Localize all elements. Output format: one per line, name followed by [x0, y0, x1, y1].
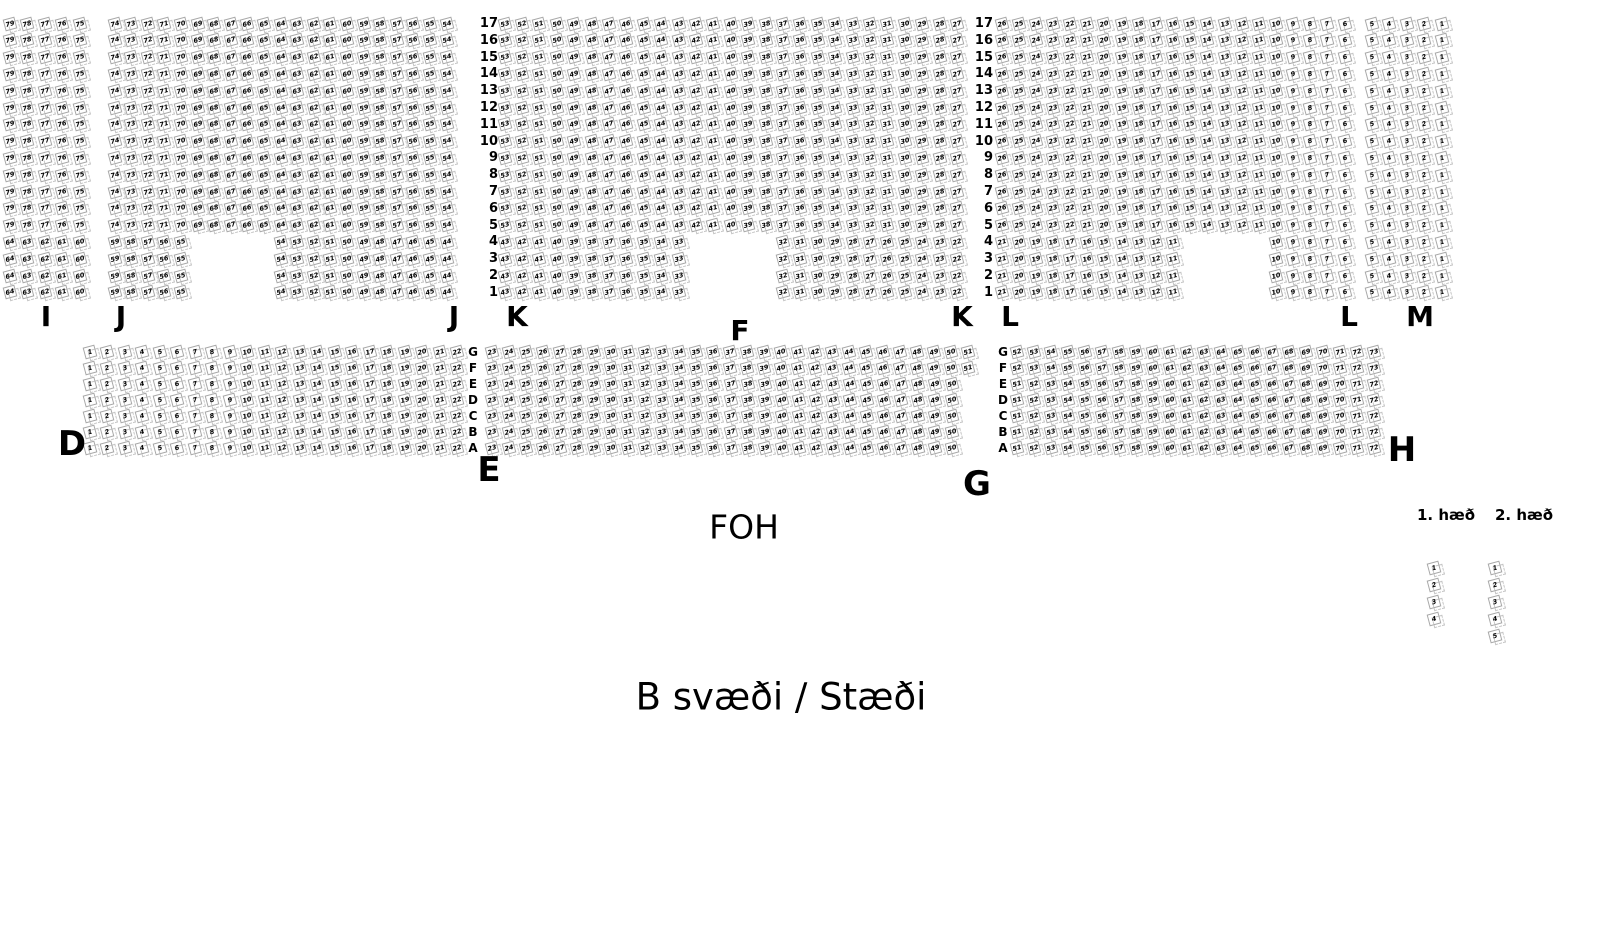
seat[interactable]: 54	[439, 151, 454, 166]
seat[interactable]: 20	[415, 360, 430, 375]
seat[interactable]: 54	[439, 83, 454, 98]
seat[interactable]: 33	[845, 83, 860, 98]
seat[interactable]: 45	[636, 167, 651, 182]
seat[interactable]: 46	[619, 184, 634, 199]
seat[interactable]: 47	[894, 440, 909, 455]
seat[interactable]: 33	[845, 50, 860, 65]
seat[interactable]: 44	[654, 33, 669, 48]
seat[interactable]: 46	[619, 117, 634, 132]
seat[interactable]: 73	[124, 67, 139, 82]
seat[interactable]: 65	[1247, 424, 1262, 439]
seat[interactable]: 46	[877, 424, 892, 439]
seat[interactable]: 56	[1077, 344, 1092, 359]
seat[interactable]: 53	[497, 50, 512, 65]
seat[interactable]: 78	[20, 151, 35, 166]
seat[interactable]: 7	[1320, 218, 1335, 233]
seat[interactable]: 53	[497, 201, 512, 216]
seat[interactable]: 63	[1196, 344, 1211, 359]
seat[interactable]: 5	[152, 344, 167, 359]
seat[interactable]: 9	[1286, 184, 1301, 199]
seat[interactable]: 5	[1364, 151, 1379, 166]
seat[interactable]: 52	[306, 235, 321, 250]
seat[interactable]: 12	[1234, 33, 1249, 48]
seat[interactable]: 24	[1028, 100, 1043, 115]
seat[interactable]: 3	[117, 360, 132, 375]
seat[interactable]: 59	[356, 33, 371, 48]
seat[interactable]: 64	[1230, 424, 1245, 439]
seat[interactable]: 56	[1094, 440, 1109, 455]
seat[interactable]: 9	[1286, 33, 1301, 48]
seat[interactable]: 52	[1026, 440, 1041, 455]
seat[interactable]: 9	[222, 424, 237, 439]
seat[interactable]: 6	[170, 440, 185, 455]
seat[interactable]: 65	[257, 134, 272, 149]
seat[interactable]: 71	[157, 184, 172, 199]
seat[interactable]: 31	[880, 83, 895, 98]
seat[interactable]: 72	[140, 218, 155, 233]
seat[interactable]: 63	[1196, 360, 1211, 375]
seat[interactable]: 31	[880, 50, 895, 65]
seat[interactable]: 61	[323, 100, 338, 115]
seat[interactable]: 5	[152, 440, 167, 455]
seat[interactable]: 28	[845, 285, 860, 300]
seat[interactable]: 79	[2, 184, 17, 199]
seat[interactable]: 74	[107, 50, 122, 65]
seat[interactable]: 35	[688, 360, 703, 375]
seat[interactable]: 15	[1183, 50, 1198, 65]
seat[interactable]: 47	[894, 376, 909, 391]
seat[interactable]: 18	[1046, 251, 1061, 266]
seat[interactable]: 56	[406, 50, 421, 65]
seat[interactable]: 5	[1364, 201, 1379, 216]
seat[interactable]: 51	[323, 251, 338, 266]
seat[interactable]: 29	[915, 50, 930, 65]
seat[interactable]: 46	[406, 235, 421, 250]
seat[interactable]: 45	[636, 50, 651, 65]
seat[interactable]: 11	[1251, 50, 1266, 65]
seat[interactable]: 47	[602, 151, 617, 166]
seat[interactable]: 27	[552, 360, 567, 375]
seat[interactable]: 37	[776, 100, 791, 115]
seat[interactable]: 38	[758, 167, 773, 182]
seat[interactable]: 69	[190, 83, 205, 98]
seat[interactable]: 70	[174, 50, 189, 65]
seat[interactable]: 34	[828, 167, 843, 182]
seat[interactable]: 24	[501, 392, 516, 407]
seat[interactable]: 78	[20, 67, 35, 82]
seat[interactable]: 61	[323, 67, 338, 82]
seat[interactable]: 59	[356, 184, 371, 199]
seat[interactable]: 36	[619, 235, 634, 250]
seat[interactable]: 74	[107, 151, 122, 166]
seat[interactable]: 52	[1009, 344, 1024, 359]
seat[interactable]: 14	[1200, 134, 1215, 149]
seat[interactable]: 2	[1487, 577, 1502, 592]
seat[interactable]: 4	[135, 424, 150, 439]
seat[interactable]: 18	[1131, 218, 1146, 233]
seat[interactable]: 57	[1111, 424, 1126, 439]
seat[interactable]: 73	[1366, 344, 1381, 359]
seat[interactable]: 18	[1131, 167, 1146, 182]
seat[interactable]: 2	[1417, 167, 1432, 182]
seat[interactable]: 71	[157, 151, 172, 166]
seat[interactable]: 13	[292, 440, 307, 455]
seat[interactable]: 66	[240, 33, 255, 48]
seat[interactable]: 67	[1281, 392, 1296, 407]
seat[interactable]: 20	[1097, 16, 1112, 31]
seat[interactable]: 59	[356, 117, 371, 132]
seat[interactable]: 3	[117, 344, 132, 359]
seat[interactable]: 14	[1200, 100, 1215, 115]
seat[interactable]: 60	[340, 67, 355, 82]
seat[interactable]: 50	[945, 424, 960, 439]
seat[interactable]: 45	[636, 151, 651, 166]
seat[interactable]: 55	[423, 117, 438, 132]
seat[interactable]: 9	[1286, 151, 1301, 166]
seat[interactable]: 66	[240, 100, 255, 115]
seat[interactable]: 31	[880, 218, 895, 233]
seat[interactable]: 58	[124, 285, 139, 300]
seat[interactable]: 44	[654, 167, 669, 182]
seat[interactable]: 62	[306, 16, 321, 31]
seat[interactable]: 26	[994, 167, 1009, 182]
seat[interactable]: 67	[1281, 376, 1296, 391]
seat[interactable]: 50	[549, 201, 564, 216]
seat[interactable]: 47	[602, 83, 617, 98]
seat[interactable]: 9	[1286, 285, 1301, 300]
seat[interactable]: 25	[1011, 167, 1026, 182]
seat[interactable]: 32	[863, 184, 878, 199]
seat[interactable]: 25	[518, 424, 533, 439]
seat[interactable]: 7	[1320, 50, 1335, 65]
seat[interactable]: 54	[1060, 392, 1075, 407]
seat[interactable]: 39	[756, 360, 771, 375]
seat[interactable]: 17	[1148, 33, 1163, 48]
seat[interactable]: 6	[1337, 67, 1352, 82]
seat[interactable]: 19	[1114, 50, 1129, 65]
seat[interactable]: 40	[549, 251, 564, 266]
seat[interactable]: 16	[1080, 251, 1095, 266]
seat[interactable]: 71	[1349, 392, 1364, 407]
seat[interactable]: 34	[654, 235, 669, 250]
seat[interactable]: 36	[793, 100, 808, 115]
seat[interactable]: 57	[140, 268, 155, 283]
seat[interactable]: 10	[240, 440, 255, 455]
seat[interactable]: 6	[1337, 33, 1352, 48]
seat[interactable]: 21	[1080, 16, 1095, 31]
seat[interactable]: 13	[292, 344, 307, 359]
seat[interactable]: 35	[636, 251, 651, 266]
seat[interactable]: 67	[1264, 360, 1279, 375]
seat[interactable]: 44	[843, 440, 858, 455]
seat[interactable]: 21	[1080, 50, 1095, 65]
seat[interactable]: 29	[828, 235, 843, 250]
seat[interactable]: 30	[897, 134, 912, 149]
seat[interactable]: 77	[37, 33, 52, 48]
seat[interactable]: 24	[1028, 83, 1043, 98]
seat[interactable]: 28	[932, 50, 947, 65]
seat[interactable]: 44	[654, 184, 669, 199]
seat[interactable]: 28	[932, 67, 947, 82]
seat[interactable]: 44	[654, 218, 669, 233]
seat[interactable]: 8	[1303, 151, 1318, 166]
seat[interactable]: 4	[1382, 134, 1397, 149]
seat[interactable]: 49	[567, 184, 582, 199]
seat[interactable]: 48	[584, 151, 599, 166]
seat[interactable]: 23	[932, 285, 947, 300]
seat[interactable]: 55	[1077, 408, 1092, 423]
seat[interactable]: 48	[584, 184, 599, 199]
seat[interactable]: 23	[1046, 33, 1061, 48]
seat[interactable]: 2	[1417, 16, 1432, 31]
seat[interactable]: 16	[1166, 50, 1181, 65]
seat[interactable]: 69	[1298, 344, 1313, 359]
seat[interactable]: 47	[389, 285, 404, 300]
seat[interactable]: 3	[1399, 201, 1414, 216]
seat[interactable]: 9	[222, 440, 237, 455]
seat[interactable]: 60	[340, 151, 355, 166]
seat[interactable]: 35	[689, 424, 704, 439]
seat[interactable]: 30	[897, 50, 912, 65]
seat[interactable]: 8	[1303, 235, 1318, 250]
seat[interactable]: 60	[340, 33, 355, 48]
seat[interactable]: 18	[1131, 100, 1146, 115]
seat[interactable]: 79	[2, 134, 17, 149]
seat[interactable]: 78	[20, 134, 35, 149]
seat[interactable]: 4	[1382, 167, 1397, 182]
seat[interactable]: 36	[619, 285, 634, 300]
seat[interactable]: 7	[1320, 201, 1335, 216]
seat[interactable]: 66	[240, 16, 255, 31]
seat[interactable]: 9	[1286, 67, 1301, 82]
seat[interactable]: 79	[2, 83, 17, 98]
seat[interactable]: 62	[306, 201, 321, 216]
seat[interactable]: 21	[432, 360, 447, 375]
seat[interactable]: 66	[240, 50, 255, 65]
seat[interactable]: 41	[706, 67, 721, 82]
seat[interactable]: 20	[1097, 100, 1112, 115]
seat[interactable]: 36	[705, 360, 720, 375]
seat[interactable]: 74	[107, 201, 122, 216]
seat[interactable]: 22	[450, 392, 465, 407]
seat[interactable]: 46	[619, 218, 634, 233]
seat[interactable]: 23	[1046, 134, 1061, 149]
seat[interactable]: 58	[373, 151, 388, 166]
seat[interactable]: 35	[689, 392, 704, 407]
seat[interactable]: 77	[37, 83, 52, 98]
seat[interactable]: 11	[1166, 235, 1181, 250]
seat[interactable]: 38	[758, 201, 773, 216]
seat[interactable]: 40	[773, 360, 788, 375]
seat[interactable]: 8	[1303, 16, 1318, 31]
seat[interactable]: 2	[100, 424, 115, 439]
seat[interactable]: 52	[515, 50, 530, 65]
seat[interactable]: 71	[157, 134, 172, 149]
seat[interactable]: 52	[515, 201, 530, 216]
seat[interactable]: 41	[532, 268, 547, 283]
seat[interactable]: 12	[1148, 235, 1163, 250]
seat[interactable]: 5	[152, 408, 167, 423]
seat[interactable]: 29	[915, 33, 930, 48]
seat[interactable]: 58	[373, 33, 388, 48]
seat[interactable]: 64	[273, 201, 288, 216]
seat[interactable]: 17	[1148, 100, 1163, 115]
seat[interactable]: 69	[190, 67, 205, 82]
seat[interactable]: 24	[501, 440, 516, 455]
seat[interactable]: 43	[826, 408, 841, 423]
seat[interactable]: 4	[135, 376, 150, 391]
seat[interactable]: 35	[810, 117, 825, 132]
seat[interactable]: 61	[55, 235, 70, 250]
seat[interactable]: 22	[450, 424, 465, 439]
seat[interactable]: 9	[1286, 100, 1301, 115]
seat[interactable]: 37	[776, 151, 791, 166]
seat[interactable]: 40	[723, 201, 738, 216]
seat[interactable]: 63	[290, 184, 305, 199]
seat[interactable]: 37	[776, 184, 791, 199]
seat[interactable]: 49	[567, 67, 582, 82]
seat[interactable]: 49	[567, 134, 582, 149]
seat[interactable]: 47	[602, 167, 617, 182]
seat[interactable]: 42	[808, 392, 823, 407]
seat[interactable]: 54	[439, 67, 454, 82]
seat[interactable]: 1	[1434, 50, 1449, 65]
seat[interactable]: 77	[37, 218, 52, 233]
seat[interactable]: 70	[174, 16, 189, 31]
seat[interactable]: 56	[406, 151, 421, 166]
seat[interactable]: 3	[117, 424, 132, 439]
seat[interactable]: 62	[1196, 408, 1211, 423]
seat[interactable]: 44	[654, 117, 669, 132]
seat[interactable]: 62	[306, 184, 321, 199]
seat[interactable]: 14	[1200, 151, 1215, 166]
seat[interactable]: 51	[532, 218, 547, 233]
seat[interactable]: 30	[604, 376, 619, 391]
seat[interactable]: 45	[636, 218, 651, 233]
seat[interactable]: 13	[1131, 268, 1146, 283]
seat[interactable]: 72	[140, 100, 155, 115]
seat[interactable]: 3	[117, 376, 132, 391]
seat[interactable]: 76	[55, 33, 70, 48]
seat[interactable]: 45	[423, 268, 438, 283]
seat[interactable]: 10	[1269, 285, 1284, 300]
seat[interactable]: 57	[1111, 376, 1126, 391]
seat[interactable]: 2	[1426, 577, 1441, 592]
seat[interactable]: 7	[187, 408, 202, 423]
seat[interactable]: 37	[723, 440, 738, 455]
seat[interactable]: 56	[157, 285, 172, 300]
seat[interactable]: 23	[484, 344, 499, 359]
seat[interactable]: 58	[124, 268, 139, 283]
seat[interactable]: 8	[205, 408, 220, 423]
seat[interactable]: 6	[1337, 117, 1352, 132]
seat[interactable]: 48	[584, 167, 599, 182]
seat[interactable]: 64	[273, 83, 288, 98]
seat[interactable]: 38	[584, 268, 599, 283]
seat[interactable]: 63	[290, 50, 305, 65]
seat[interactable]: 28	[570, 424, 585, 439]
seat[interactable]: 45	[636, 134, 651, 149]
seat[interactable]: 65	[257, 117, 272, 132]
seat[interactable]: 10	[1269, 235, 1284, 250]
seat[interactable]: 2	[1417, 50, 1432, 65]
seat[interactable]: 9	[1286, 134, 1301, 149]
seat[interactable]: 26	[535, 408, 550, 423]
seat[interactable]: 59	[1145, 376, 1160, 391]
seat[interactable]: 1	[1434, 184, 1449, 199]
seat[interactable]: 44	[843, 392, 858, 407]
seat[interactable]: 19	[1114, 117, 1129, 132]
seat[interactable]: 45	[860, 408, 875, 423]
seat[interactable]: 10	[1269, 184, 1284, 199]
seat[interactable]: 41	[532, 235, 547, 250]
seat[interactable]: 23	[1046, 83, 1061, 98]
seat[interactable]: 30	[604, 408, 619, 423]
seat[interactable]: 18	[1046, 235, 1061, 250]
seat[interactable]: 58	[1111, 344, 1126, 359]
seat[interactable]: 64	[1230, 440, 1245, 455]
seat[interactable]: 42	[515, 235, 530, 250]
seat[interactable]: 76	[55, 50, 70, 65]
seat[interactable]: 8	[1303, 251, 1318, 266]
seat[interactable]: 30	[810, 235, 825, 250]
seat[interactable]: 53	[497, 33, 512, 48]
seat[interactable]: 45	[636, 83, 651, 98]
seat[interactable]: 76	[55, 67, 70, 82]
seat[interactable]: 3	[1399, 83, 1414, 98]
seat[interactable]: 61	[1162, 344, 1177, 359]
seat[interactable]: 79	[2, 16, 17, 31]
seat[interactable]: 41	[706, 201, 721, 216]
seat[interactable]: 74	[107, 184, 122, 199]
seat[interactable]: 38	[758, 67, 773, 82]
seat[interactable]: 21	[1080, 33, 1095, 48]
seat[interactable]: 59	[356, 167, 371, 182]
seat[interactable]: 12	[1234, 201, 1249, 216]
seat[interactable]: 29	[587, 376, 602, 391]
seat[interactable]: 67	[1281, 424, 1296, 439]
seat[interactable]: 19	[397, 392, 412, 407]
seat[interactable]: 65	[257, 151, 272, 166]
seat[interactable]: 65	[1230, 360, 1245, 375]
seat[interactable]: 27	[863, 285, 878, 300]
seat[interactable]: 71	[1349, 376, 1364, 391]
seat[interactable]: 18	[380, 360, 395, 375]
seat[interactable]: 68	[1281, 344, 1296, 359]
seat[interactable]: 27	[552, 392, 567, 407]
seat[interactable]: 52	[515, 184, 530, 199]
seat[interactable]: 24	[501, 376, 516, 391]
seat[interactable]: 14	[1114, 268, 1129, 283]
seat[interactable]: 32	[638, 440, 653, 455]
seat[interactable]: 73	[124, 218, 139, 233]
seat[interactable]: 2	[1417, 83, 1432, 98]
seat[interactable]: 61	[323, 33, 338, 48]
seat[interactable]: 36	[706, 376, 721, 391]
seat[interactable]: 58	[373, 16, 388, 31]
seat[interactable]: 54	[439, 167, 454, 182]
seat[interactable]: 35	[810, 151, 825, 166]
seat[interactable]: 35	[689, 440, 704, 455]
seat[interactable]: 1	[1434, 117, 1449, 132]
seat[interactable]: 1	[1434, 235, 1449, 250]
seat[interactable]: 3	[1399, 184, 1414, 199]
seat[interactable]: 15	[1183, 83, 1198, 98]
seat[interactable]: 50	[340, 235, 355, 250]
seat[interactable]: 23	[1046, 117, 1061, 132]
seat[interactable]: 4	[1382, 201, 1397, 216]
seat[interactable]: 76	[55, 100, 70, 115]
